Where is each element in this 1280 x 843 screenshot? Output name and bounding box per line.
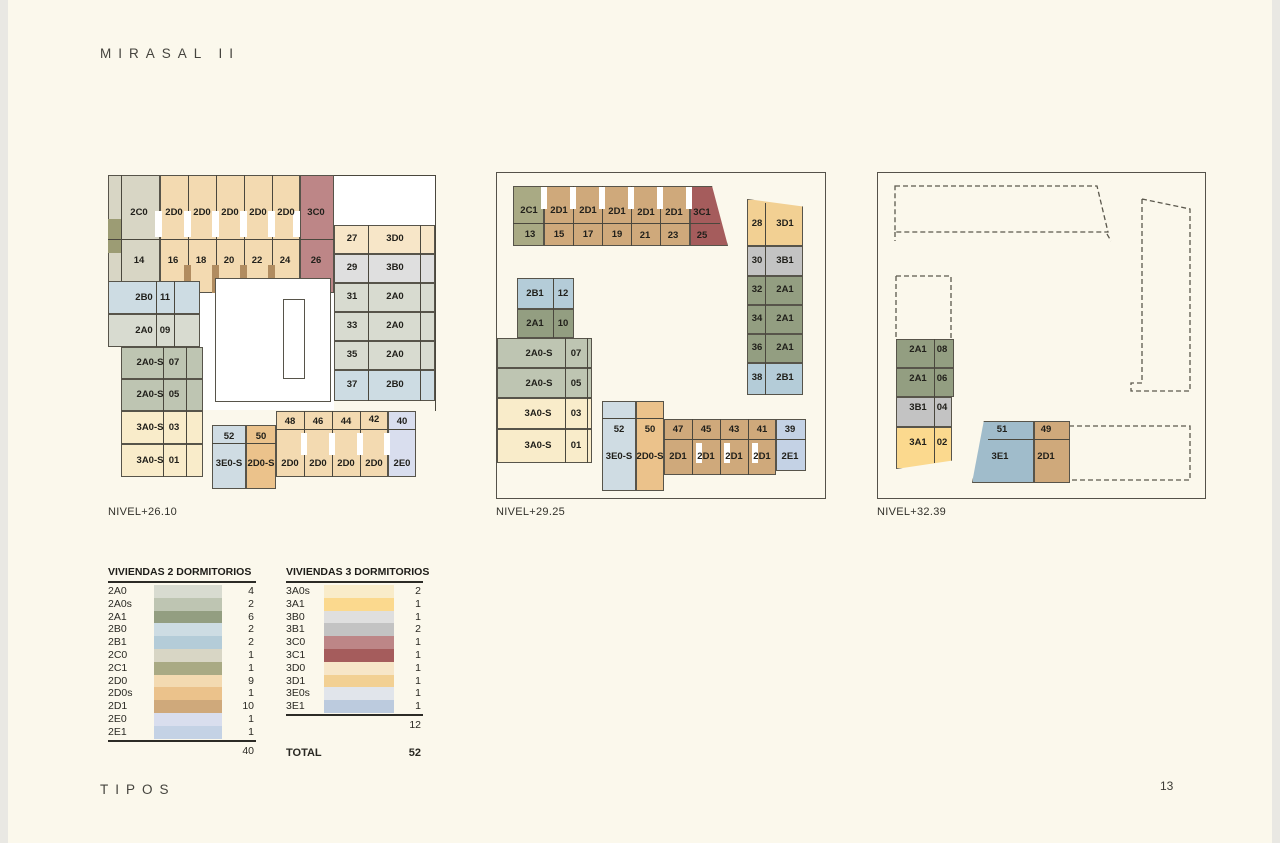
unit-number-label: 46 [313, 417, 324, 427]
unit-number-label: 02 [937, 438, 948, 448]
unit-type-label: 3B1 [776, 256, 793, 266]
unit-type-label: 2A0-S [526, 349, 553, 359]
legend-color-swatch [324, 675, 394, 688]
unit-number-label: 20 [224, 256, 235, 266]
unit-type-label: 3E0-S [216, 459, 242, 469]
unit-number-label: 43 [729, 425, 740, 435]
unit-number-label: 24 [280, 256, 291, 266]
legend-row-count: 6 [222, 611, 256, 624]
legend-subtotal-3-bedroom: 12 [286, 714, 423, 731]
legend-row: 3B01 [286, 611, 423, 624]
legend-title-3-bedroom: VIVIENDAS 3 DORMITORIOS [286, 566, 423, 583]
legend-row: 2E01 [108, 713, 256, 726]
legend-row: 2D09 [108, 675, 256, 688]
unit-type-label: 2D0 [249, 208, 266, 218]
unit-number-label: 19 [612, 230, 623, 240]
unit-number-label: 45 [701, 425, 712, 435]
unit-type-label: 2D0 [337, 459, 354, 469]
plan-detail [334, 175, 436, 176]
legend-row: 3D11 [286, 675, 423, 688]
unit-number-label: 52 [614, 425, 625, 435]
legend-row-count: 1 [394, 649, 423, 662]
unit-number-label: 47 [673, 425, 684, 435]
plan-detail [602, 418, 664, 419]
legend-row: 3A0s2 [286, 585, 423, 598]
legend-color-swatch [154, 636, 222, 649]
unit-type-label: 2A1 [776, 343, 793, 353]
unit-type-label: 2E1 [782, 452, 799, 462]
unit-number-label: 32 [752, 285, 763, 295]
unit-type-label: 2A1 [776, 314, 793, 324]
unit-block [160, 175, 300, 293]
unit-number-label: 33 [347, 321, 358, 331]
unit-type-label: 3B0 [386, 263, 403, 273]
project-title: MIRASAL II [100, 46, 240, 61]
unit-number-label: 01 [571, 441, 582, 451]
unit-type-label: 2A1 [909, 374, 926, 384]
unit-number-label: 12 [558, 289, 569, 299]
unit-number-label: 30 [752, 256, 763, 266]
legend-color-swatch [324, 585, 394, 598]
dashed-outline-path [1107, 234, 1111, 241]
legend-row-count: 2 [222, 636, 256, 649]
plan-detail [420, 225, 421, 401]
legend-row-count: 4 [222, 585, 256, 598]
unit-type-label: 3A0-S [525, 441, 552, 451]
legend-row-count: 1 [222, 687, 256, 700]
document-page: MIRASAL II 2C02D02D02D02D02D03C014161820… [8, 0, 1272, 843]
unit-number-label: 38 [752, 373, 763, 383]
unit-type-label: 2A1 [526, 319, 543, 329]
legend-color-swatch [154, 598, 222, 611]
plan-detail [988, 439, 1070, 440]
legend-row-label: 3D0 [286, 662, 324, 675]
plan-detail [720, 419, 721, 475]
unit-block [108, 314, 200, 347]
legend-row-count: 1 [394, 636, 423, 649]
legend-row-label: 3A0s [286, 585, 324, 598]
unit-number-label: 27 [347, 234, 358, 244]
unit-type-label: 2E0 [394, 459, 411, 469]
unit-type-label: 3E1 [992, 452, 1009, 462]
legend-row-label: 2B1 [108, 636, 154, 649]
legend-row: 2E11 [108, 726, 256, 739]
legend-row: 3B12 [286, 623, 423, 636]
section-title: TIPOS [100, 782, 176, 797]
legend-row-count: 2 [394, 585, 423, 598]
unit-type-label: 2D1 [725, 452, 742, 462]
legend-row-count: 2 [222, 623, 256, 636]
unit-number-label: 03 [169, 423, 180, 433]
unit-type-label: 2A0 [386, 350, 403, 360]
legend-row-count: 1 [394, 598, 423, 611]
unit-number-label: 49 [1041, 425, 1052, 435]
legend-row-label: 2D0s [108, 687, 154, 700]
unit-type-label: 2D1 [579, 206, 596, 216]
unit-type-label: 3A0-S [137, 456, 164, 466]
legend-color-swatch [324, 636, 394, 649]
unit-number-label: 23 [668, 231, 679, 241]
dashed-outline-path [1131, 199, 1190, 391]
legend-row-label: 3D1 [286, 675, 324, 688]
plan-detail [276, 429, 416, 430]
unit-type-label: 2D0 [193, 208, 210, 218]
floor-plan-nivel-26-10: 2C02D02D02D02D02D03C014161820222426273D0… [108, 171, 436, 501]
unit-type-label: 2D0 [365, 459, 382, 469]
unit-number-label: 3C1 [693, 208, 710, 218]
unit-type-label: 2C0 [130, 208, 147, 218]
legend-row-count: 1 [394, 675, 423, 688]
legend-color-swatch [154, 726, 222, 739]
unit-number-label: 42 [369, 415, 380, 425]
unit-number-label: 31 [347, 292, 358, 302]
legend-row-count: 10 [222, 700, 256, 713]
unit-number-label: 03 [571, 409, 582, 419]
legend-row-label: 2E0 [108, 713, 154, 726]
unit-type-label: 2D0 [277, 208, 294, 218]
unit-number-label: 22 [252, 256, 263, 266]
plan-detail [587, 338, 588, 463]
plan-detail [686, 187, 692, 209]
legend-row-count: 2 [394, 623, 423, 636]
unit-type-label: 3E0-S [606, 452, 632, 462]
legend-color-swatch [324, 687, 394, 700]
unit-type-label: 2A0-S [526, 379, 553, 389]
legend-row-label: 2E1 [108, 726, 154, 739]
legend-title-2-bedroom: VIVIENDAS 2 DORMITORIOS [108, 566, 256, 583]
unit-type-label: 2B1 [526, 289, 543, 299]
legend-color-swatch [324, 700, 394, 713]
total-value: 52 [409, 747, 421, 759]
legend-color-swatch [324, 623, 394, 636]
unit-type-label: 2A0-S [137, 358, 164, 368]
plan-detail [357, 433, 363, 455]
legend-2-bedroom: VIVIENDAS 2 DORMITORIOS 2A042A0s22A162B0… [108, 566, 256, 757]
floor-plan-nivel-29-25: 2C12D12D12D12D12D13C113151719212325283D1… [496, 172, 826, 499]
unit-type-label: 2D1 [697, 452, 714, 462]
plan-detail [599, 187, 605, 209]
legend-color-swatch [324, 662, 394, 675]
unit-type-label: 2A0 [386, 321, 403, 331]
plan-detail [329, 433, 335, 455]
legend-row-label: 3C1 [286, 649, 324, 662]
floor-plan-nivel-32-39: 2A1082A1063B1043A102513E1492D1 [877, 172, 1206, 499]
unit-number-label: 05 [169, 390, 180, 400]
plan-detail [384, 433, 390, 455]
legend-row-count: 1 [394, 611, 423, 624]
plan-detail [121, 175, 122, 293]
unit-block [602, 401, 636, 491]
unit-block [215, 278, 331, 402]
unit-type-label: 3A0-S [137, 423, 164, 433]
unit-type-label: 2D0 [221, 208, 238, 218]
unit-number-label: 48 [285, 417, 296, 427]
plan-detail [301, 433, 307, 455]
legend-row: 3C01 [286, 636, 423, 649]
legend-color-swatch [154, 585, 222, 598]
unit-number-label: 26 [311, 256, 322, 266]
unit-type-label: 3D0 [386, 234, 403, 244]
plan-detail [565, 338, 566, 463]
plan-caption-nivel-32-39: NIVEL+32.39 [877, 506, 946, 518]
unit-number-label: 13 [525, 230, 536, 240]
unit-type-label: 2D1 [1037, 452, 1054, 462]
unit-number-label: 07 [571, 349, 582, 359]
legend-row-count: 2 [222, 598, 256, 611]
plan-detail [934, 339, 935, 463]
legend-row-count: 1 [222, 649, 256, 662]
legend-row-label: 2A0 [108, 585, 154, 598]
unit-number-label: 01 [169, 456, 180, 466]
legend-row: 3C11 [286, 649, 423, 662]
legend-row: 3A11 [286, 598, 423, 611]
legend-row-label: 3E0s [286, 687, 324, 700]
plan-detail [657, 187, 663, 209]
unit-number-label: 14 [134, 256, 145, 266]
legend-color-swatch [154, 713, 222, 726]
legend-row: 3E11 [286, 700, 423, 713]
legend-row-label: 2D0 [108, 675, 154, 688]
unit-number-label: 16 [168, 256, 179, 266]
unit-number-label: 10 [558, 319, 569, 329]
unit-type-label: 2D1 [637, 208, 654, 218]
dashed-outline-path [1053, 426, 1190, 480]
unit-type-label: 2B0 [135, 293, 152, 303]
unit-type-label: 2D0-S [637, 452, 664, 462]
unit-number-label: 05 [571, 379, 582, 389]
unit-number-label: 41 [757, 425, 768, 435]
legend-row: 2D0s1 [108, 687, 256, 700]
plan-detail [435, 176, 436, 411]
unit-number-label: 04 [937, 403, 948, 413]
unit-number-label: 40 [397, 417, 408, 427]
plan-detail [553, 278, 554, 338]
unit-number-label: 06 [937, 374, 948, 384]
unit-number-label: 50 [645, 425, 656, 435]
page-number: 13 [1160, 779, 1173, 793]
unit-block [636, 401, 664, 491]
legend-color-swatch [324, 598, 394, 611]
unit-number-label: 25 [697, 231, 708, 241]
unit-block [300, 175, 334, 293]
unit-number-label: 11 [160, 293, 170, 303]
legend-row-label: 3B0 [286, 611, 324, 624]
unit-number-label: 17 [583, 230, 594, 240]
plan-detail [334, 175, 435, 225]
unit-type-label: 2D0-S [248, 459, 275, 469]
unit-number-label: 21 [640, 231, 651, 241]
legend-row: 3D01 [286, 662, 423, 675]
unit-number-label: 28 [752, 219, 763, 229]
legend-color-swatch [154, 649, 222, 662]
legend-row: 2C01 [108, 649, 256, 662]
unit-type-label: 3A0-S [525, 409, 552, 419]
plan-detail [240, 211, 247, 237]
unit-number-label: 08 [937, 345, 948, 355]
legend-row-count: 1 [222, 726, 256, 739]
plan-detail [212, 211, 219, 237]
unit-type-label: 2A0 [386, 292, 403, 302]
legend-row-label: 3A1 [286, 598, 324, 611]
legend-color-swatch [324, 611, 394, 624]
unit-number-label: 51 [997, 425, 1008, 435]
plan-detail [184, 211, 191, 237]
legend-color-swatch [154, 675, 222, 688]
plan-caption-nivel-29-25: NIVEL+29.25 [496, 506, 565, 518]
legend-row: 2A16 [108, 611, 256, 624]
unit-number-label: 29 [347, 263, 358, 273]
legend-row-label: 2D1 [108, 700, 154, 713]
plan-detail [628, 187, 634, 209]
legend-color-swatch [154, 662, 222, 675]
unit-number-label: 39 [785, 425, 796, 435]
plan-detail [155, 211, 162, 237]
plan-detail [513, 223, 720, 224]
legend-row-count: 1 [394, 687, 423, 700]
unit-type-label: 2A1 [909, 345, 926, 355]
legend-row-label: 2C1 [108, 662, 154, 675]
legend-row-count: 1 [222, 713, 256, 726]
plan-detail [570, 187, 576, 209]
legend-row: 3E0s1 [286, 687, 423, 700]
unit-number-label: 18 [196, 256, 207, 266]
legend-subtotal-2-bedroom: 40 [108, 740, 256, 757]
unit-type-label: 2D1 [550, 206, 567, 216]
unit-type-label: 2D0 [165, 208, 182, 218]
legend-row: 2B12 [108, 636, 256, 649]
unit-number-label: 52 [224, 432, 235, 442]
legend-row: 2B02 [108, 623, 256, 636]
legend-row-label: 3E1 [286, 700, 324, 713]
legend-row: 2D110 [108, 700, 256, 713]
plan-detail [541, 187, 547, 209]
unit-number-label: 09 [160, 326, 171, 336]
legend-row-label: 3B1 [286, 623, 324, 636]
unit-number-label: 34 [752, 314, 763, 324]
legend-row: 2A0s2 [108, 598, 256, 611]
legend-color-swatch [154, 687, 222, 700]
unit-type-label: 2D0 [281, 459, 298, 469]
plan-detail [692, 419, 693, 475]
plan-detail [765, 203, 766, 395]
legend-rows-3-bedroom: 3A0s23A113B013B123C013C113D013D113E0s13E… [286, 585, 423, 713]
unit-number-label: 50 [256, 432, 267, 442]
legend-color-swatch [154, 623, 222, 636]
unit-type-label: 3A1 [909, 438, 926, 448]
legend-row: 2A04 [108, 585, 256, 598]
plan-detail [368, 225, 369, 401]
unit-type-label: 3D1 [776, 219, 793, 229]
unit-number-label: 36 [752, 343, 763, 353]
unit-type-label: 2D1 [669, 452, 686, 462]
legend-total-row: TOTAL 52 [286, 747, 423, 759]
plan-detail [748, 419, 749, 475]
unit-block [283, 299, 305, 379]
plan-detail [268, 211, 275, 237]
unit-number-label: 15 [554, 230, 565, 240]
legend-row-label: 2A0s [108, 598, 154, 611]
legend-row-label: 2B0 [108, 623, 154, 636]
unit-type-label: 2A0 [135, 326, 152, 336]
legend-color-swatch [154, 700, 222, 713]
unit-type-label: 2B0 [386, 380, 403, 390]
dashed-outline-path [895, 186, 1108, 232]
unit-type-label: 2C1 [520, 206, 537, 216]
legend-color-swatch [154, 611, 222, 624]
legend-rows-2-bedroom: 2A042A0s22A162B022B122C012C112D092D0s12D… [108, 585, 256, 739]
unit-type-label: 2D1 [608, 207, 625, 217]
plan-detail [186, 347, 187, 477]
unit-type-label: 3B1 [909, 403, 926, 413]
unit-number-label: 37 [347, 380, 358, 390]
plan-detail [212, 443, 276, 444]
legend-row-count: 1 [222, 662, 256, 675]
plan-detail [174, 281, 175, 347]
legend-3-bedroom: VIVIENDAS 3 DORMITORIOS 3A0s23A113B013B1… [286, 566, 423, 759]
dashed-outline-path [896, 276, 951, 339]
unit-number-label: 07 [169, 358, 180, 368]
legend-row-count: 9 [222, 675, 256, 688]
unit-type-label: 2D0 [309, 459, 326, 469]
plan-detail [664, 439, 806, 440]
unit-block [108, 281, 200, 314]
unit-type-label: 2B1 [776, 373, 793, 383]
legend-row-label: 3C0 [286, 636, 324, 649]
plan-detail [156, 281, 157, 347]
total-label: TOTAL [286, 747, 322, 759]
unit-type-label: 2A1 [776, 285, 793, 295]
plan-caption-nivel-26-10: NIVEL+26.10 [108, 506, 177, 518]
unit-number-label: 44 [341, 417, 352, 427]
legend-row-count: 1 [394, 700, 423, 713]
legend-row: 2C11 [108, 662, 256, 675]
plan-detail [108, 239, 334, 240]
legend-row-count: 1 [394, 662, 423, 675]
unit-number-label: 35 [347, 350, 358, 360]
plan-detail [108, 219, 121, 253]
unit-type-label: 2D1 [753, 452, 770, 462]
unit-number-label: 3C0 [307, 208, 324, 218]
legend-row-label: 2A1 [108, 611, 154, 624]
legend-row-label: 2C0 [108, 649, 154, 662]
unit-type-label: 2D1 [665, 208, 682, 218]
unit-type-label: 2A0-S [137, 390, 164, 400]
legend-color-swatch [324, 649, 394, 662]
